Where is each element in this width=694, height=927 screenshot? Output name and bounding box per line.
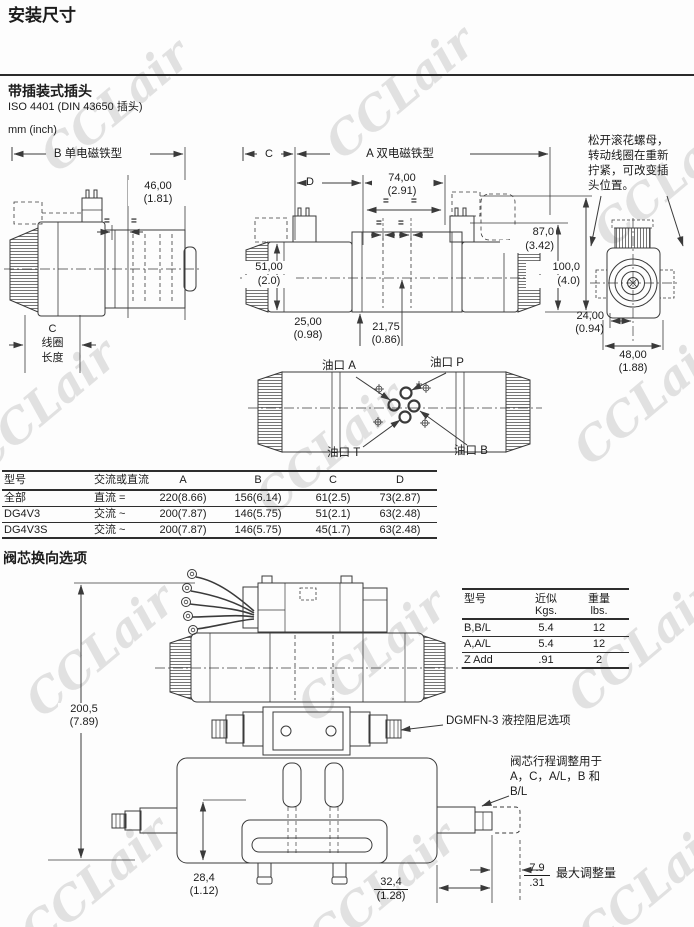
dim-24: 24,00 — [556, 310, 604, 323]
table-cell: 全部 — [4, 492, 26, 504]
coil-dim-c: C — [30, 323, 75, 336]
port-b-label: 油口 B — [454, 445, 488, 458]
dim-25-inch: (0.98) — [280, 329, 336, 342]
table-cell: 交流 ~ — [94, 524, 125, 536]
equal-mark: = — [104, 216, 110, 228]
col-header: A — [152, 474, 214, 486]
dim-324: 32,4 — [374, 876, 408, 890]
table-cell: 交流 ~ — [94, 508, 125, 520]
stroke-note-line1: 阀芯行程调整用于 — [510, 756, 602, 769]
dim-79-den: .31 — [524, 877, 550, 890]
dim-284: 28,4 — [180, 872, 228, 885]
dim-d: D — [296, 176, 324, 189]
dim-2175: 21,75 — [358, 321, 414, 334]
equal-mark: = — [376, 218, 382, 230]
main-stage-valve — [112, 758, 520, 884]
table-cell: 2 — [572, 654, 626, 666]
dim-74: 74,00 — [372, 172, 432, 185]
dim-51: 51,00 — [242, 261, 296, 274]
col-header: 交流或直流 — [94, 474, 149, 486]
table-cell: 156(6.14) — [214, 492, 302, 504]
table-cell: 直流 = — [94, 492, 125, 504]
equal-mark: = — [131, 216, 137, 228]
section1-heading: 带插装式插头 — [8, 83, 92, 99]
table-cell: B,B/L — [464, 622, 491, 634]
dim-79-num: 7.9 — [524, 862, 550, 876]
dim-87: 87,0 — [500, 226, 556, 239]
dim-2175-inch: (0.86) — [358, 334, 414, 347]
port-p-label: 油口 P — [430, 357, 464, 370]
dgmfn-note: DGMFN-3 液控阻尼选项 — [446, 715, 571, 728]
page-title: 安装尺寸 — [8, 6, 76, 26]
dim-48-inch: (1.88) — [605, 362, 661, 375]
table-cell: Z Add — [464, 654, 493, 666]
datasheet-page: CCLair CCLair CCLair CCLair CCLair CCLai… — [0, 0, 694, 927]
table-cell: A,A/L — [464, 638, 491, 650]
table-cell: 220(8.66) — [152, 492, 214, 504]
table-cell: 63(2.48) — [364, 508, 436, 520]
table-cell: 200(7.87) — [152, 508, 214, 520]
dgmfn-module — [212, 707, 401, 755]
rotate-note-line1: 松开滚花螺母， — [588, 135, 669, 148]
col-header: 重量 — [572, 593, 626, 605]
table-cell: 63(2.48) — [364, 524, 436, 536]
table-cell: 61(2.5) — [302, 492, 364, 504]
table-cell: 51(2.1) — [302, 508, 364, 520]
table-cell: DG4V3 — [4, 508, 40, 520]
col-header: Kgs. — [520, 605, 572, 617]
rotate-note-line2: 转动线圈在重新 — [588, 150, 669, 163]
coil-label-2: 长度 — [30, 352, 75, 365]
table-cell: 5.4 — [520, 622, 572, 634]
table-cell: 73(2.87) — [364, 492, 436, 504]
table-cell: 200(7.87) — [152, 524, 214, 536]
standard-note: ISO 4401 (DIN 43650 插头) — [8, 101, 143, 114]
fig-single-label: B 单电磁铁型 — [28, 148, 148, 161]
table-cell: 12 — [572, 622, 626, 634]
fig-port-view — [248, 372, 542, 452]
fig-double-label: A 双电磁铁型 — [330, 148, 470, 161]
col-header: D — [364, 474, 436, 486]
rotate-note-line3: 拧紧，可改变插 — [588, 165, 669, 178]
col-header: 近似 — [520, 593, 572, 605]
table-cell: .91 — [520, 654, 572, 666]
dim-51-inch: (2.0) — [242, 275, 296, 288]
stroke-note-line2: A，C，A/L，B 和 — [510, 771, 600, 784]
equal-mark: = — [411, 196, 417, 208]
weight-table: 型号 近似 Kgs. 重量 lbs. B,B/L 5.4 12 A,A/L 5.… — [462, 586, 629, 669]
table-cell: 146(5.75) — [214, 524, 302, 536]
dim-25: 25,00 — [280, 316, 336, 329]
dim-100-inch: (4.0) — [526, 275, 582, 288]
dim-324-inch: (1.28) — [370, 890, 412, 903]
dim-46-inch: (1.81) — [128, 193, 188, 206]
table-cell: 146(5.75) — [214, 508, 302, 520]
dim-48: 48,00 — [605, 349, 661, 362]
dim-284-inch: (1.12) — [180, 885, 228, 898]
col-header: lbs. — [572, 605, 626, 617]
section-divider — [0, 74, 694, 76]
port-t-label: 油口 T — [327, 447, 360, 460]
equal-mark: = — [383, 196, 389, 208]
dim-46: 46,00 — [128, 180, 188, 193]
table-cell: 12 — [572, 638, 626, 650]
dim-87-inch: (3.42) — [500, 240, 556, 253]
section2-heading: 阀芯换向选项 — [3, 550, 87, 566]
stroke-note-line3: B/L — [510, 786, 527, 799]
dimension-table: 型号 交流或直流 A B C D 全部 直流 = 220(8.66) 156(6… — [2, 470, 437, 540]
equal-mark: = — [398, 218, 404, 230]
col-header: B — [214, 474, 302, 486]
table-cell: 5.4 — [520, 638, 572, 650]
col-header: C — [302, 474, 364, 486]
dim-2005: 200,5 — [58, 703, 110, 716]
col-header: 型号 — [4, 474, 26, 486]
dim-2005-inch: (7.89) — [58, 716, 110, 729]
port-a-label: 油口 A — [322, 360, 356, 373]
dim-24-inch: (0.94) — [556, 323, 604, 336]
dim-c: C — [244, 148, 294, 161]
table-cell: DG4V3S — [4, 524, 47, 536]
rotate-note-line4: 头位置。 — [588, 180, 634, 193]
coil-label-1: 线圈 — [30, 337, 75, 350]
table-cell: 45(1.7) — [302, 524, 364, 536]
units-note: mm (inch) — [8, 124, 57, 137]
col-header: 型号 — [464, 593, 486, 605]
dim-100: 100,0 — [526, 261, 582, 274]
max-adjustment-note: 最大调整量 — [556, 867, 616, 881]
dim-74-inch: (2.91) — [372, 185, 432, 198]
